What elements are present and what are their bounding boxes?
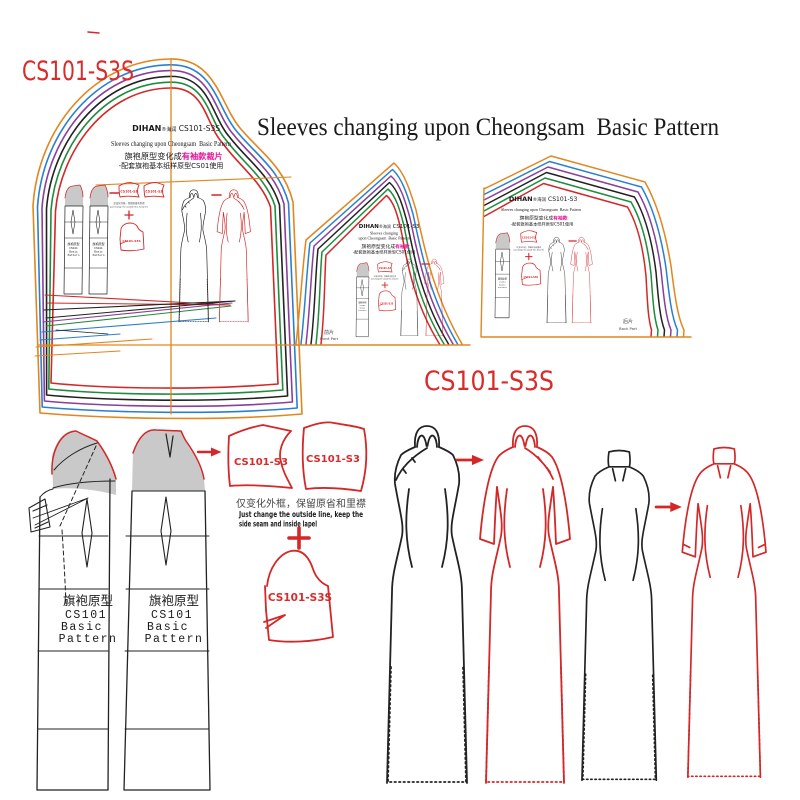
dress-front-sleeveless (387, 426, 467, 783)
page-title: Sleeves changing upon Cheongsam Basic Pa… (257, 114, 719, 141)
mini-block-back (89, 185, 108, 294)
arrow-back (656, 502, 682, 512)
mini-dress-red-back-pc (571, 237, 593, 323)
top-code-label: CS101-S3S (22, 56, 134, 87)
basic-block-back: 旗袍原型 CS101 Basic Pattern (124, 430, 210, 790)
piece-back-label: CS101-S3 (306, 454, 360, 465)
block-back-label-cn: 旗袍原型 (149, 593, 199, 608)
piece-front-label: CS101-S3 (234, 457, 288, 468)
mid-code-label: CS101-S3S (424, 366, 554, 397)
block-front-label-cn: 旗袍原型 (63, 593, 113, 608)
mini-dress-black-back-pc (547, 237, 566, 323)
front-part-cn: 前片 (324, 329, 334, 336)
dress-back-sleeveless (582, 451, 656, 781)
transform-pieces: CS101-S3 CS101-S3 仅变化外框，保留原省和里襟 Just cha… (198, 422, 366, 641)
big-subtitle: Sleeves changing upon Cheongsam Basic Pa… (111, 141, 232, 148)
mini-block-front (64, 185, 83, 294)
back-part-en: Back Part (619, 326, 637, 331)
front-sub2: upon Cheongsam Basic Pattern (358, 236, 409, 241)
big-cn-line2: -配套旗袍基本纸样原型CS01使用 (119, 161, 224, 170)
caption-en2: side seam and inside lapel (239, 520, 317, 529)
caption-cn: 仅变化外框，保留原省和里襟 (236, 497, 366, 510)
plus-icon (289, 528, 309, 548)
mini-piece-2 (144, 183, 164, 197)
caption-en1: Just change the outside line, keep the (238, 510, 363, 519)
mini-kit-front (370, 262, 398, 311)
stray-mark (88, 32, 99, 33)
pattern-sheet: 旗袍原型 CS101 Basic Pattern CS101-S3 仅变化外框，… (0, 0, 800, 800)
basic-block-front: 旗袍原型 CS101 Basic Pattern (29, 431, 117, 790)
back-cn-line1: 旗袍原型变化成有袖款 (509, 215, 575, 222)
sleeve-outline-purple (42, 71, 292, 407)
front-part-en: Front Part (320, 336, 339, 341)
block-back-label-pattern: Pattern (145, 633, 204, 646)
back-cn-line2: -配套旗袍基本纸样原型CS01使用 (511, 221, 574, 228)
pattern-drawing: 旗袍原型 CS101 Basic Pattern CS101-S3 仅变化外框，… (0, 0, 800, 800)
block-front-label-pattern: Pattern (59, 633, 118, 646)
dress-back-sleeved (682, 448, 766, 778)
back-subtitle: Sleeves changing upon Cheongsam Basic Pa… (501, 207, 581, 212)
dart-wedges (35, 295, 235, 356)
front-sleeve-pattern: DIHAN®海润 CS101-S3 Sleeves changing upon … (293, 163, 470, 345)
big-sleeve-pattern: DIHAN®海润 CS101-S3S Sleeves changing upon… (33, 59, 302, 418)
mini-dress-red-front-pc (425, 259, 444, 336)
mini-block-front-pc (356, 263, 369, 337)
dress-front-sleeved (480, 426, 570, 783)
front-cn-line2: -配套旗袍基本纸样原型CS01使用 (353, 249, 416, 256)
sleeve-piece-label: CS101-S3S (268, 592, 332, 604)
big-cn-line1: 旗袍原型变化成有袖款裁片 (106, 151, 236, 161)
dress-row (387, 426, 766, 783)
mini-block-back-pc (495, 233, 510, 318)
back-part-cn: 后片 (623, 318, 633, 325)
back-brand-line: DIHAN®海润 CS101-S3 (473, 186, 602, 205)
mini-kit-back (513, 231, 544, 285)
arrow-blocks-to-pieces (198, 448, 222, 457)
arrow-front (457, 455, 484, 465)
back-sleeve-pattern: DIHAN®海润 CS101-S3 Sleeves changing upon … (473, 156, 691, 337)
front-brand-line: DIHAN®海润 CS101-S3 (323, 213, 445, 232)
